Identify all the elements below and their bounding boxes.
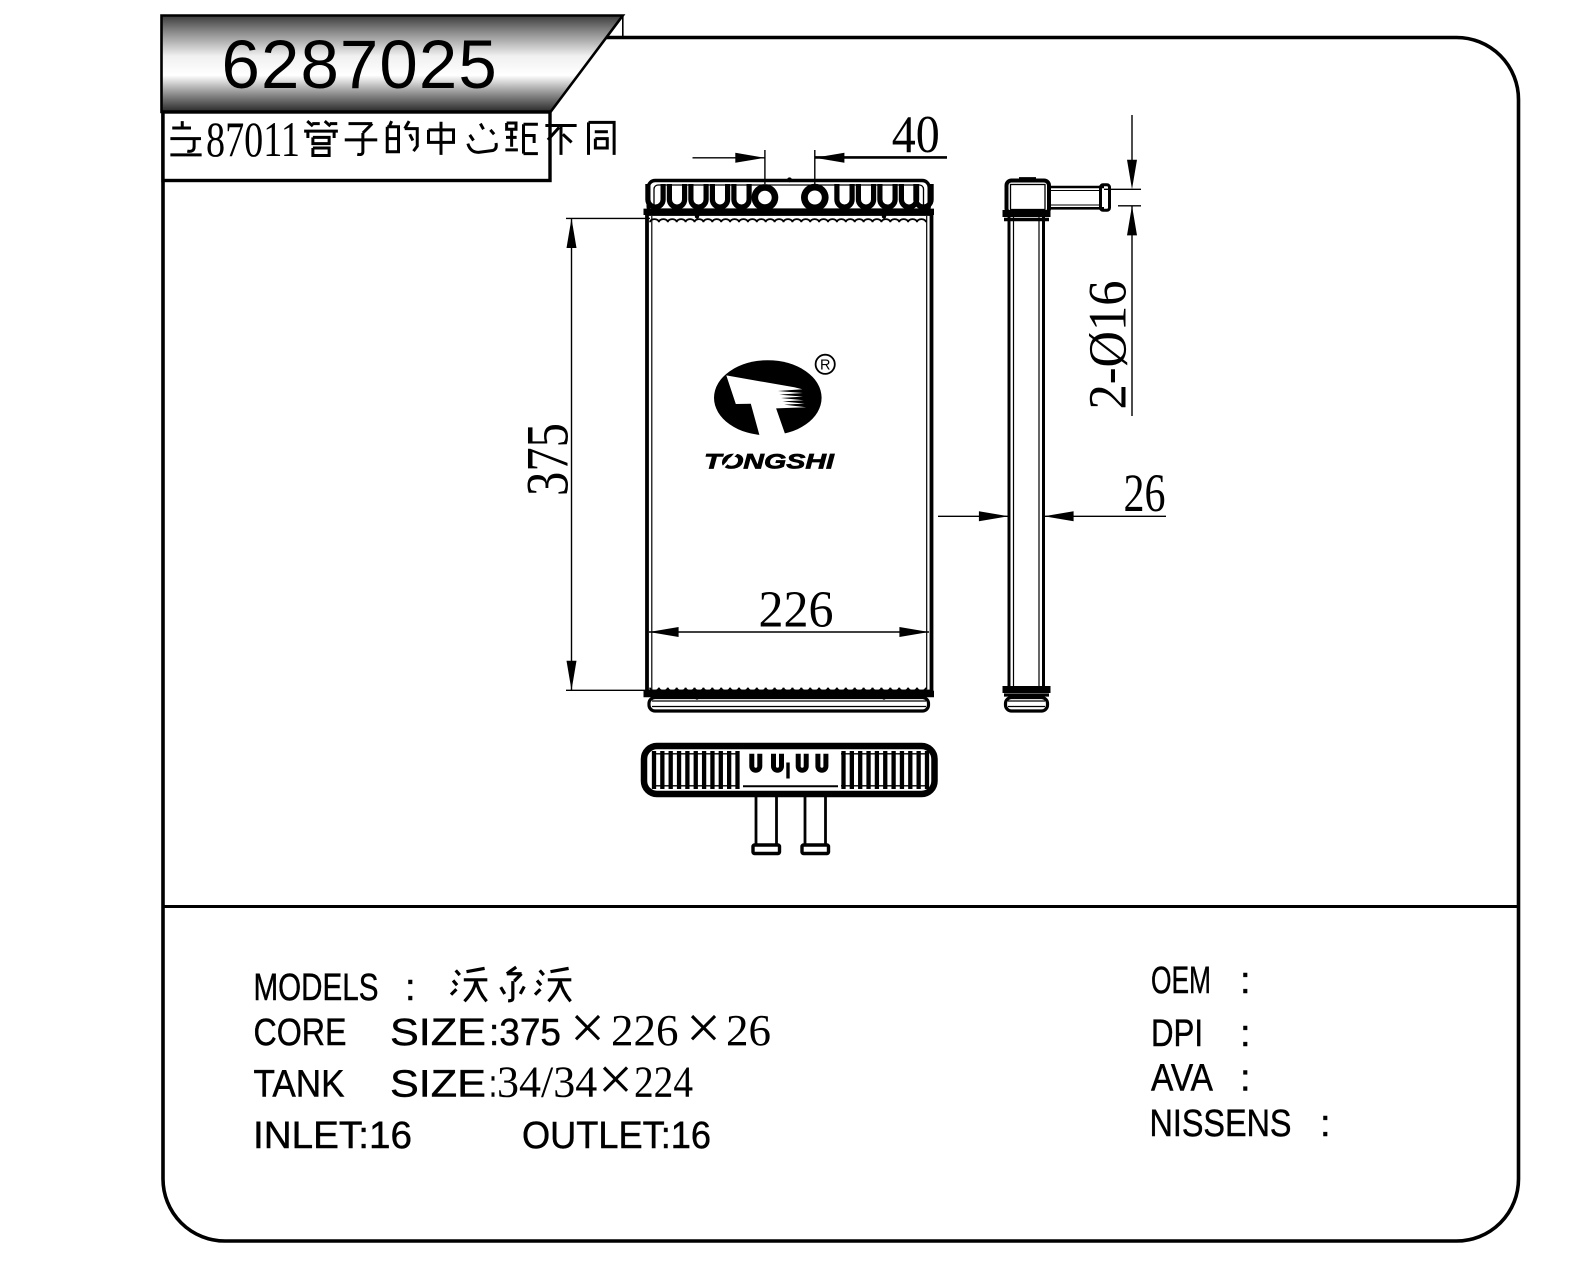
svg-text:26: 26 [726,1006,771,1055]
svg-text:INLET:16: INLET:16 [253,1115,412,1157]
svg-text:6287025: 6287025 [222,26,498,103]
svg-text:DPI: DPI [1151,1013,1203,1055]
svg-text:226: 226 [759,581,834,638]
svg-text:CORE: CORE [254,1012,347,1054]
svg-text:×: × [598,1046,633,1114]
svg-text:224: 224 [634,1058,693,1107]
svg-text:SIZE: SIZE [390,1012,486,1054]
svg-text:375: 375 [515,423,581,496]
svg-text:2-Ø16: 2-Ø16 [1077,281,1138,410]
svg-text:TANK: TANK [254,1064,345,1106]
svg-text:OUTLET:16: OUTLET:16 [522,1115,711,1157]
svg-text::: : [489,1064,497,1106]
svg-text:AVA: AVA [1151,1058,1214,1100]
svg-text:MODELS: MODELS [254,967,379,1009]
svg-text:R: R [820,358,830,374]
svg-text:26: 26 [1124,463,1166,523]
svg-text:TONGSHI: TONGSHI [704,450,835,474]
svg-text:40: 40 [892,106,940,164]
svg-text::: : [1240,1058,1251,1100]
svg-text:×: × [686,995,721,1063]
svg-text::: : [1240,960,1251,1002]
svg-text::: : [1320,1103,1331,1145]
svg-text:NISSENS: NISSENS [1150,1103,1292,1145]
svg-text::: : [405,967,416,1009]
svg-text::375: :375 [489,1012,561,1054]
svg-text:34/34: 34/34 [497,1058,597,1107]
svg-text:87011: 87011 [206,111,300,167]
svg-text:SIZE: SIZE [390,1064,486,1106]
svg-text::: : [1240,1013,1251,1055]
svg-text:OEM: OEM [1151,960,1211,1002]
